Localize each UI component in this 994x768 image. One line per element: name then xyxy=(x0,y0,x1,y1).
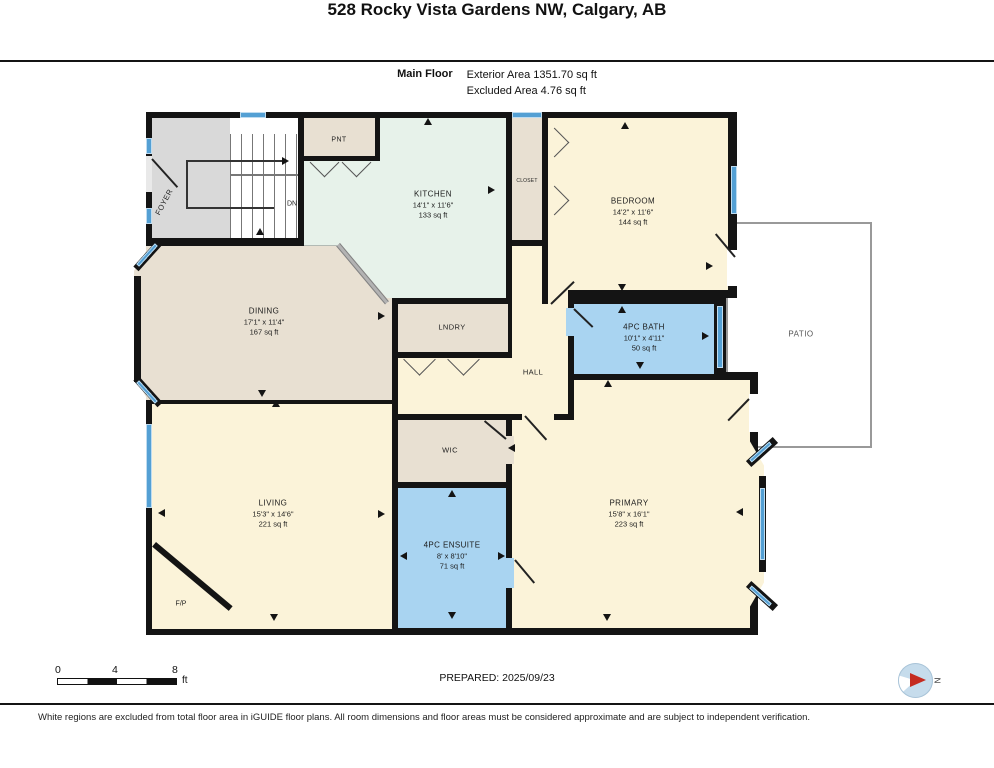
room-dims: 15'3" x 14'6" xyxy=(252,509,293,520)
window xyxy=(146,424,152,508)
room-name: 4PC ENSUITE xyxy=(424,539,481,551)
room-area: 167 sq ft xyxy=(244,328,285,339)
footer-divider xyxy=(0,703,994,705)
fireplace-label: F/P xyxy=(176,601,187,608)
staircase xyxy=(230,118,298,238)
direction-arrow-icon xyxy=(488,186,495,194)
primary-room xyxy=(574,380,750,628)
room-name: DINING xyxy=(244,305,285,317)
floor-plan-page: 528 Rocky Vista Gardens NW, Calgary, AB … xyxy=(0,0,994,768)
prepared-date: PREPARED: 2025/09/23 xyxy=(0,672,994,684)
closet-label: CLOSET xyxy=(516,178,537,184)
room-area: 144 sq ft xyxy=(611,218,655,229)
wall xyxy=(134,276,141,382)
window xyxy=(240,112,266,118)
window xyxy=(146,138,152,154)
primary-room xyxy=(512,420,578,628)
direction-arrow-icon xyxy=(736,508,743,516)
window xyxy=(717,306,723,368)
hall-area xyxy=(512,246,542,304)
room-dims: 8' x 8'10" xyxy=(424,551,481,562)
excluded-area: Excluded Area 4.76 sq ft xyxy=(467,84,597,100)
stair-direction-arrow-icon xyxy=(282,157,289,165)
floor-summary: Main Floor Exterior Area 1351.70 sq ft E… xyxy=(0,68,994,100)
direction-arrow-icon xyxy=(702,332,709,340)
room-dims: 14'2" x 11'6" xyxy=(611,207,655,218)
pnt-label: PNT xyxy=(331,137,346,144)
direction-arrow-icon xyxy=(706,262,713,270)
patio-label: PATIO xyxy=(788,330,813,339)
wic-label: WIC xyxy=(442,446,458,455)
stair-path xyxy=(186,207,274,209)
floor-areas: Exterior Area 1351.70 sq ft Excluded Are… xyxy=(467,68,597,100)
stairs-dn-label: DN xyxy=(287,201,297,208)
direction-arrow-icon xyxy=(378,510,385,518)
header-divider xyxy=(0,60,994,62)
direction-arrow-icon xyxy=(448,612,456,619)
room-area: 71 sq ft xyxy=(424,562,481,573)
floor-label: Main Floor xyxy=(397,68,453,100)
direction-arrow-icon xyxy=(618,284,626,291)
stair-path xyxy=(186,160,282,162)
direction-arrow-icon xyxy=(508,444,515,452)
direction-arrow-icon xyxy=(270,614,278,621)
room-area: 221 sq ft xyxy=(252,520,293,531)
ensuite-label: 4PC ENSUITE 8' x 8'10" 71 sq ft xyxy=(424,539,481,572)
direction-arrow-icon xyxy=(256,228,264,235)
compass: N xyxy=(898,663,942,699)
bedroom-label: BEDROOM 14'2" x 11'6" 144 sq ft xyxy=(611,195,655,228)
room-dims: 10'1" x 4'11" xyxy=(623,333,665,344)
window xyxy=(760,488,765,560)
window xyxy=(146,208,152,224)
window xyxy=(731,166,737,214)
bath-door-opening xyxy=(566,308,576,336)
direction-arrow-icon xyxy=(378,312,385,320)
room-dims: 15'8" x 16'1" xyxy=(608,509,649,520)
direction-arrow-icon xyxy=(498,552,505,560)
room-name: BEDROOM xyxy=(611,195,655,207)
stair-landing xyxy=(230,118,298,134)
room-name: PRIMARY xyxy=(608,497,649,509)
dining-label: DINING 17'1" x 11'4" 167 sq ft xyxy=(244,305,285,338)
direction-arrow-icon xyxy=(448,490,456,497)
room-area: 133 sq ft xyxy=(413,211,454,222)
living-label: LIVING 15'3" x 14'6" 221 sq ft xyxy=(252,497,293,530)
kitchen-label: KITCHEN 14'1" x 11'6" 133 sq ft xyxy=(413,188,454,221)
stair-path xyxy=(186,160,188,208)
room-dims: 17'1" x 11'4" xyxy=(244,317,285,328)
room-area: 223 sq ft xyxy=(608,520,649,531)
room-name: 4PC BATH xyxy=(623,321,665,333)
direction-arrow-icon xyxy=(400,552,407,560)
direction-arrow-icon xyxy=(258,390,266,397)
direction-arrow-icon xyxy=(424,118,432,125)
ensuite-door-opening xyxy=(504,558,514,588)
hall-label: HALL xyxy=(523,368,543,377)
direction-arrow-icon xyxy=(618,306,626,313)
bath-label: 4PC BATH 10'1" x 4'11" 50 sq ft xyxy=(623,321,665,354)
compass-needle-icon xyxy=(910,673,926,687)
direction-arrow-icon xyxy=(158,509,165,517)
direction-arrow-icon xyxy=(636,362,644,369)
direction-arrow-icon xyxy=(272,400,280,407)
disclaimer-text: White regions are excluded from total fl… xyxy=(38,712,958,723)
page-title: 528 Rocky Vista Gardens NW, Calgary, AB xyxy=(0,0,994,20)
primary-label: PRIMARY 15'8" x 16'1" 223 sq ft xyxy=(608,497,649,530)
room-dims: 14'1" x 11'6" xyxy=(413,200,454,211)
primary-patio-door-opening xyxy=(749,394,759,432)
stair-midrail xyxy=(230,174,298,176)
room-name: KITCHEN xyxy=(413,188,454,200)
exterior-area: Exterior Area 1351.70 sq ft xyxy=(467,68,597,84)
foyer-room xyxy=(152,118,230,238)
lndry-label: LNDRY xyxy=(438,323,465,332)
window xyxy=(512,112,542,118)
room-name: LIVING xyxy=(252,497,293,509)
entry-door-opening xyxy=(146,156,152,192)
direction-arrow-icon xyxy=(621,122,629,129)
room-area: 50 sq ft xyxy=(623,344,665,355)
compass-north-label: N xyxy=(932,678,941,684)
direction-arrow-icon xyxy=(603,614,611,621)
direction-arrow-icon xyxy=(604,380,612,387)
